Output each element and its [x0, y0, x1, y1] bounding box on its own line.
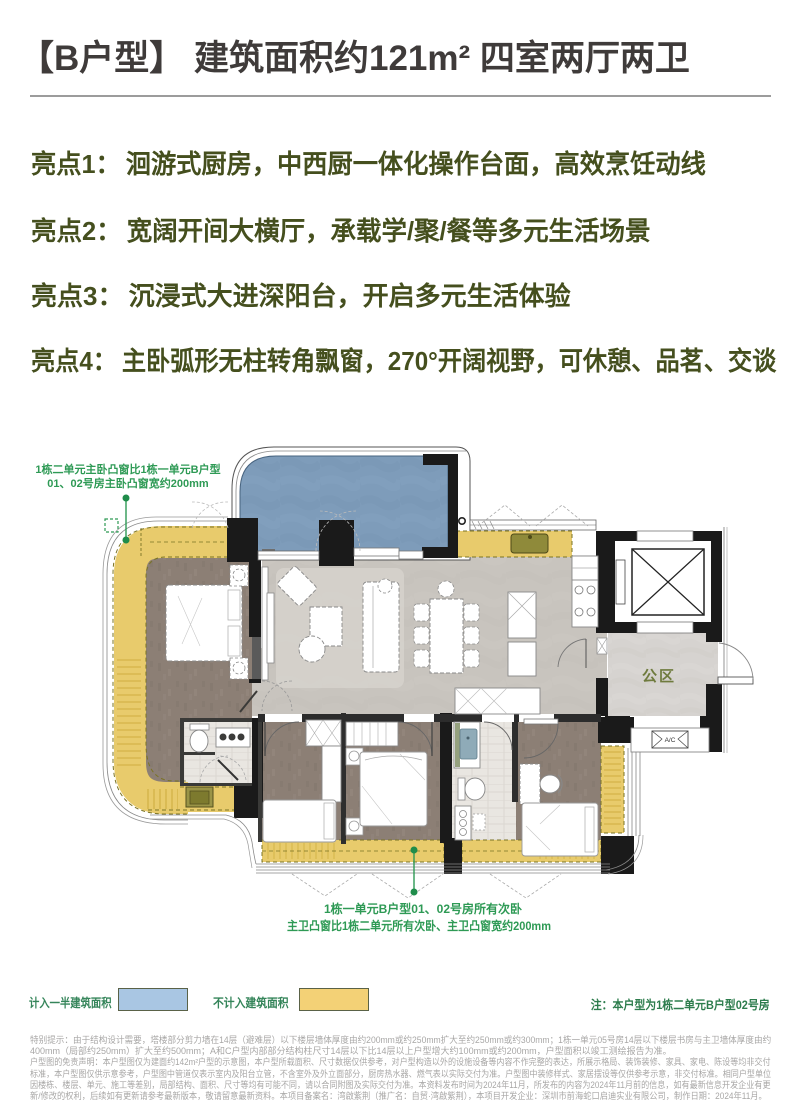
- svg-text:主卫凸窗比1栋二单元所有次卧、主卫凸窗宽约200mm: 主卫凸窗比1栋二单元所有次卧、主卫凸窗宽约200mm: [287, 918, 551, 933]
- svg-text:A/C: A/C: [665, 737, 676, 744]
- svg-text:1栋一单元B户型01、02号房所有次卧: 1栋一单元B户型01、02号房所有次卧: [324, 901, 522, 916]
- svg-text:公区: 公区: [642, 668, 676, 685]
- svg-text:1栋二单元主卧凸窗比1栋一单元B户型: 1栋二单元主卧凸窗比1栋一单元B户型: [35, 462, 220, 476]
- svg-text:01、02号房主卧凸窗宽约200mm: 01、02号房主卧凸窗宽约200mm: [47, 476, 209, 490]
